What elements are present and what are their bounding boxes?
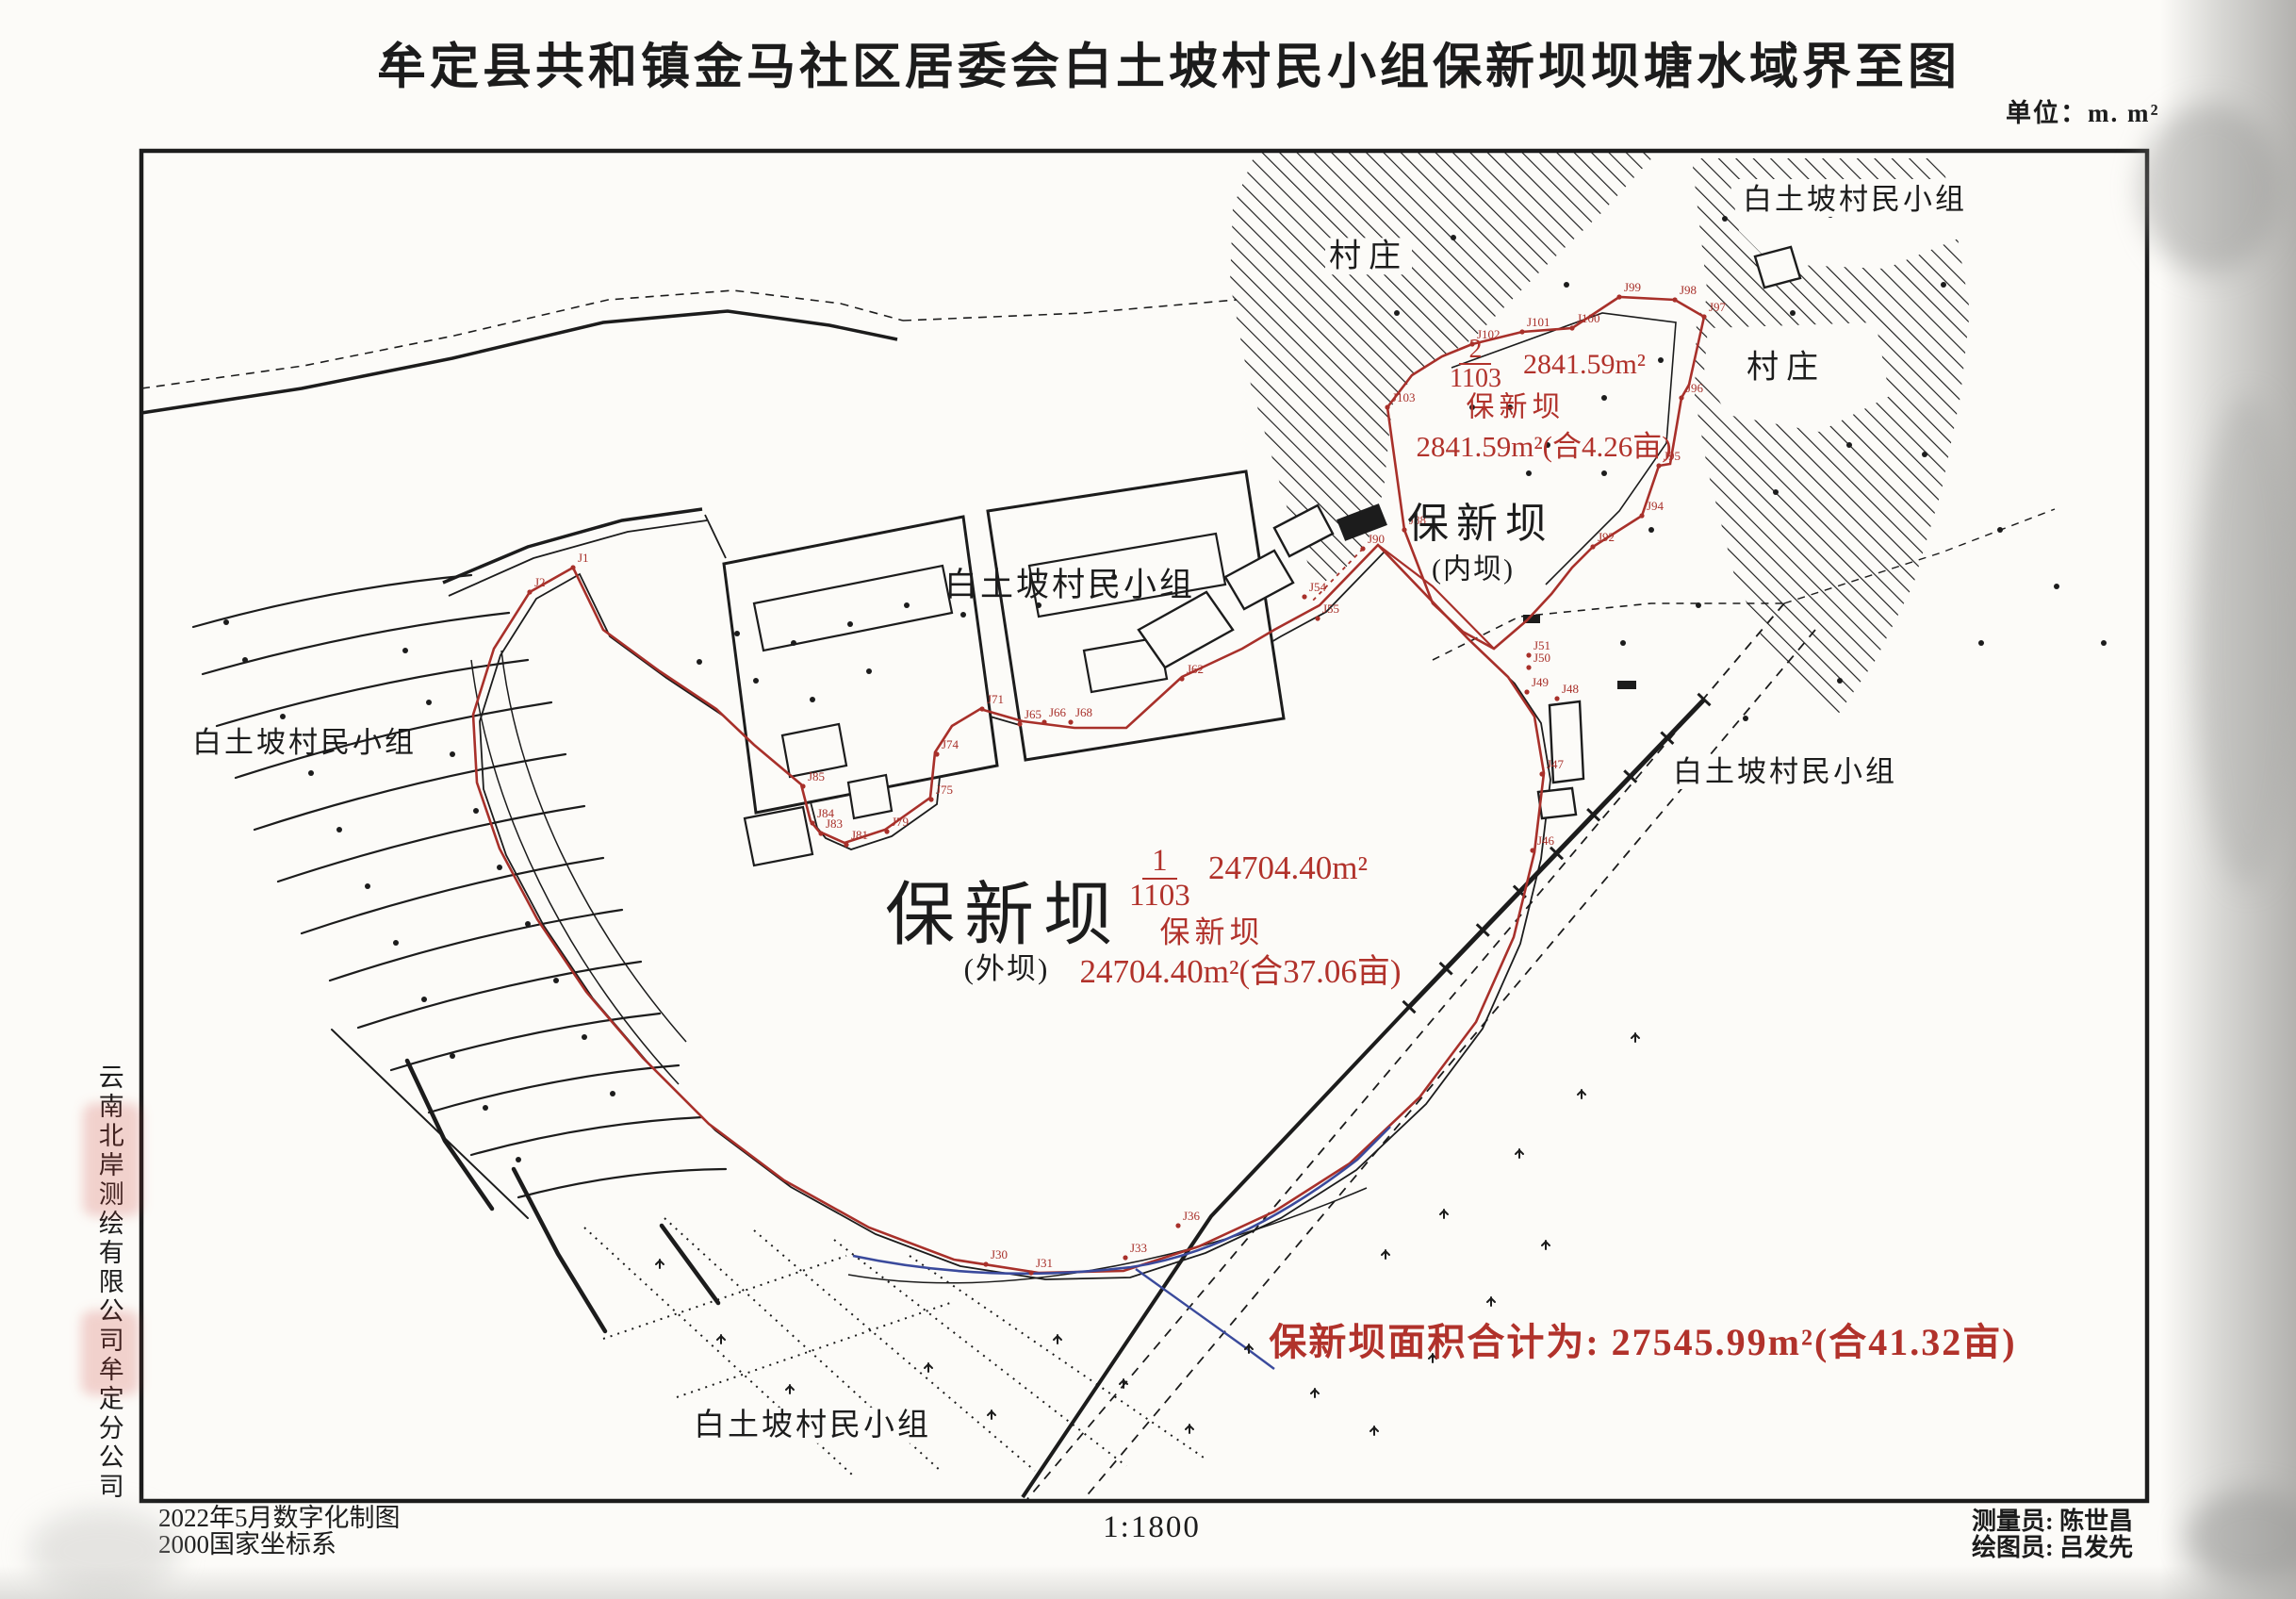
svg-text:J74: J74 — [942, 737, 959, 751]
svg-text:J65: J65 — [1025, 707, 1041, 721]
svg-text:J92: J92 — [1598, 530, 1615, 544]
inner-dam-parcel-fraction: 2 1103 — [1450, 336, 1501, 393]
footer-digitization-note: 2022年5月数字化制图 — [158, 1505, 401, 1533]
map-scale: 1:1800 — [1103, 1510, 1201, 1544]
svg-text:J54: J54 — [1309, 580, 1327, 594]
outer-dam-area: 24704.40m² — [1208, 850, 1368, 887]
svg-text:J71: J71 — [987, 692, 1004, 706]
outer-dam-parcel-number: 1 — [1142, 845, 1177, 880]
svg-text:J90: J90 — [1368, 532, 1385, 546]
svg-text:J81: J81 — [851, 828, 868, 842]
village-group-label-top-right: 白土坡村民小组 — [1739, 183, 1971, 217]
svg-text:J99: J99 — [1624, 280, 1641, 294]
outer-dam-subname: (外坝) — [964, 953, 1050, 985]
svg-text:J94: J94 — [1647, 499, 1665, 513]
village-group-label-top-middle: 白土坡村民小组 — [944, 568, 1195, 604]
svg-text:J47: J47 — [1547, 757, 1565, 771]
svg-text:J79: J79 — [892, 815, 909, 829]
scanned-map-page: J1J2J54J55J62J65J66J68J71J74J75J79J81J83… — [0, 0, 2296, 1599]
footer-surveyor: 测量员: 陈世昌 — [1972, 1508, 2133, 1536]
red-seal-mark-2 — [81, 1311, 139, 1395]
village-group-label-bottom: 白土坡村民小组 — [690, 1408, 935, 1443]
inner-dam-subname: (内坝) — [1432, 554, 1515, 585]
svg-text:J48: J48 — [1562, 682, 1579, 696]
map-title: 牟定县共和镇金马社区居委会白土坡村民小组保新坝坝塘水域界至图 — [377, 41, 1960, 94]
footer-coordinate-system: 2000国家坐标系 — [158, 1531, 336, 1559]
svg-text:J51: J51 — [1533, 638, 1550, 652]
svg-text:J33: J33 — [1130, 1241, 1147, 1255]
inner-dam-parcel-denominator: 1103 — [1450, 365, 1501, 392]
total-area-note: 保新坝面积合计为: 27545.99m²(合41.32亩) — [1269, 1322, 2016, 1363]
inner-dam-area-detail: 2841.59m²(合4.26亩) — [1416, 431, 1671, 463]
inner-dam-name-red: 保新坝 — [1467, 392, 1566, 423]
tree-symbols — [656, 1033, 1639, 1435]
outer-dam-parcel-fraction: 1 1103 — [1129, 845, 1190, 912]
svg-text:J103: J103 — [1392, 390, 1416, 404]
outer-dam-parcel-denominator: 1103 — [1129, 880, 1190, 913]
hamlet-label-2: 村庄 — [1743, 349, 1829, 386]
slope-terrace-lines — [193, 575, 726, 1197]
units-label: 单位：m. m² — [2006, 100, 2160, 128]
village-group-label-left: 白土坡村民小组 — [192, 727, 417, 759]
svg-text:J97: J97 — [1709, 300, 1727, 314]
inner-dam-area: 2841.59m² — [1523, 349, 1646, 380]
hamlet-label-1: 村庄 — [1325, 238, 1412, 274]
outer-dam-area-detail: 24704.40m²(合37.06亩) — [1079, 954, 1401, 991]
scan-smudge — [2196, 396, 2296, 886]
svg-text:J100: J100 — [1577, 311, 1600, 325]
svg-text:J101: J101 — [1527, 315, 1550, 329]
svg-text:J98: J98 — [1680, 283, 1697, 297]
svg-text:J68: J68 — [1075, 705, 1092, 719]
svg-text:J62: J62 — [1187, 662, 1204, 676]
inner-dam-parcel-number: 2 — [1459, 336, 1491, 365]
svg-text:J66: J66 — [1049, 705, 1067, 719]
footer-draftsman: 绘图员: 吕发先 — [1972, 1535, 2133, 1562]
svg-text:J55: J55 — [1322, 602, 1339, 616]
svg-text:J30: J30 — [991, 1247, 1008, 1261]
svg-text:J96: J96 — [1686, 381, 1704, 395]
svg-text:J46: J46 — [1537, 833, 1555, 848]
svg-text:J31: J31 — [1036, 1256, 1053, 1270]
outer-dam-name-red: 保新坝 — [1159, 915, 1264, 948]
red-seal-mark — [83, 1103, 141, 1216]
svg-text:J2: J2 — [534, 575, 546, 589]
scan-bottom-band — [0, 1565, 2296, 1599]
svg-text:J75: J75 — [936, 783, 953, 797]
outer-dam-name: 保新坝 — [885, 878, 1123, 954]
svg-text:J36: J36 — [1183, 1209, 1201, 1223]
inner-dam-name: 保新坝 — [1407, 502, 1554, 547]
svg-text:J50: J50 — [1533, 651, 1550, 665]
svg-text:J85: J85 — [808, 769, 825, 783]
svg-text:J84: J84 — [817, 806, 835, 820]
svg-text:J1: J1 — [578, 551, 589, 565]
village-group-label-right: 白土坡村民小组 — [1669, 755, 1901, 789]
scan-smudge — [2140, 104, 2281, 273]
svg-text:J49: J49 — [1532, 675, 1549, 689]
